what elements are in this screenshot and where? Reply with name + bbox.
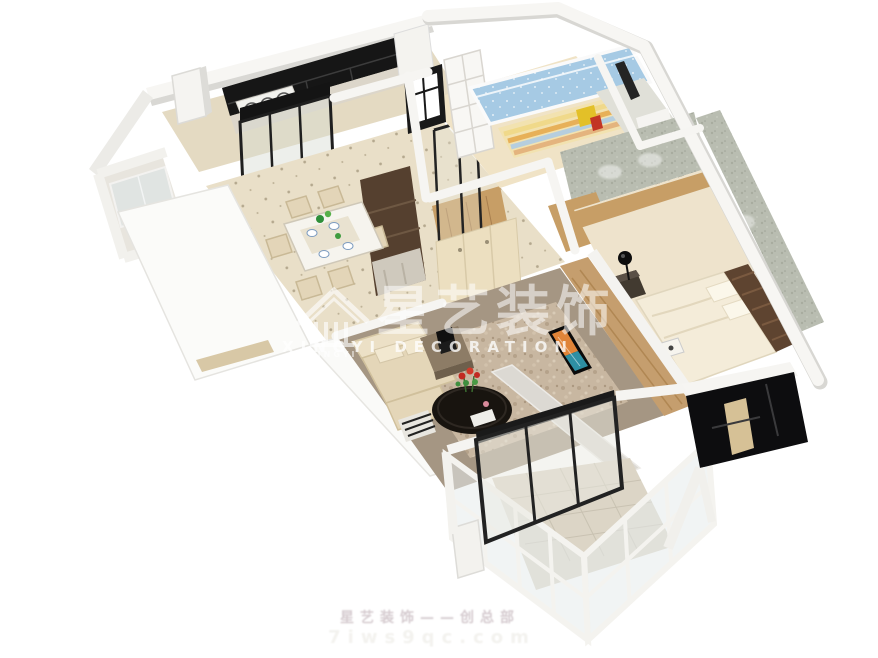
floor-plan-screenshot: XINGYI 星艺装饰 XINGYI DECORATION 星艺装饰——创总部 … — [0, 0, 878, 658]
wall-spotlight — [598, 165, 622, 179]
fridge — [172, 66, 212, 124]
wall-spotlight — [638, 153, 662, 167]
watermark-bottom: 星艺装饰——创总部 7iws9qc.com — [328, 609, 536, 648]
watermark-bottom-line1: 星艺装饰——创总部 — [340, 609, 520, 626]
watermark-latin: XINGYI DECORATION — [282, 338, 574, 356]
table-decor-green — [316, 215, 324, 223]
watermark-bottom-line2: 7iws9qc.com — [328, 627, 536, 648]
watermark-cn-large: 星艺装饰 — [376, 280, 616, 343]
pink-decor — [483, 401, 489, 407]
floor-plan-render: XINGYI 星艺装饰 XINGYI DECORATION 星艺装饰——创总部 … — [0, 0, 878, 658]
